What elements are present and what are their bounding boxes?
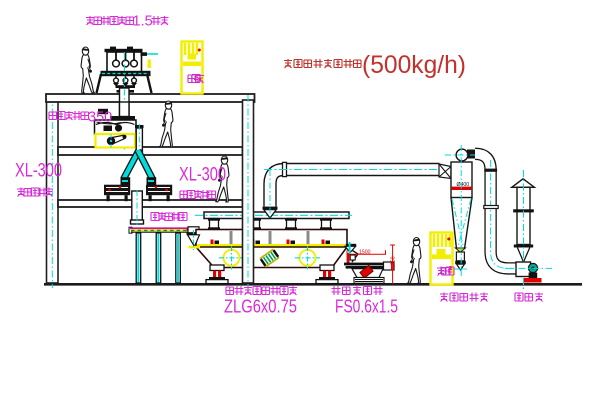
svg-text:(500kg/h): (500kg/h) [362,51,466,79]
svg-text:350: 350 [391,256,397,265]
svg-text:350: 350 [88,110,112,126]
svg-text:FS0.6x1.5: FS0.6x1.5 [335,297,398,317]
svg-text:XL-300: XL-300 [179,165,226,186]
svg-text:ZLG6x0.75: ZLG6x0.75 [224,297,297,317]
svg-text:1500: 1500 [359,250,371,256]
svg-text:1.5: 1.5 [133,14,153,30]
svg-text:XL-300: XL-300 [15,161,62,182]
